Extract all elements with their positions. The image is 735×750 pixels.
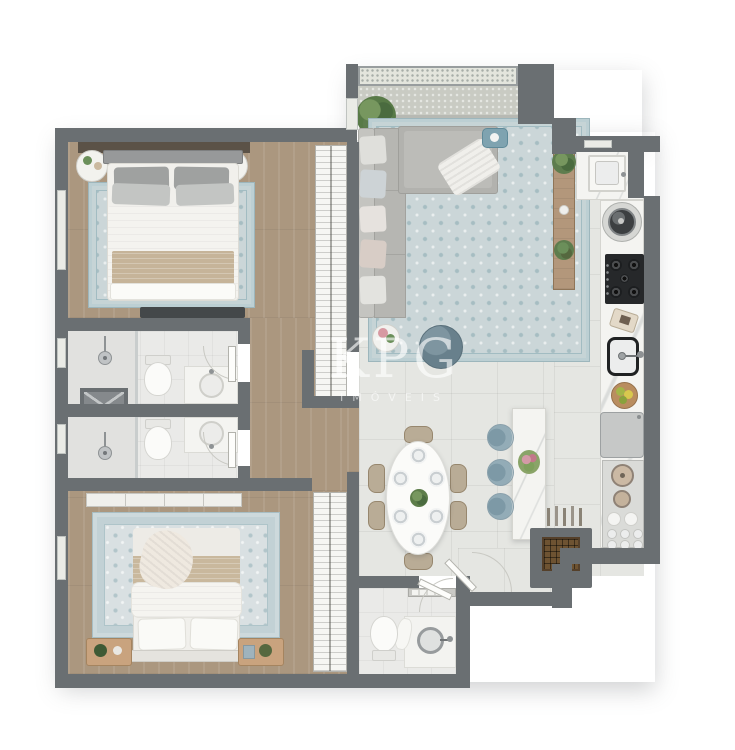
laundry-faucet xyxy=(621,172,626,177)
bottle-5 xyxy=(579,508,582,526)
bedroom2-closet xyxy=(313,492,347,672)
cooktop-knobs xyxy=(606,262,609,296)
balcony-railing xyxy=(358,66,518,86)
bathroom1-shower-glass xyxy=(135,331,138,404)
bed2-duvet xyxy=(131,582,242,618)
bathroom1-door xyxy=(228,346,236,382)
sofa-pillow-3 xyxy=(359,205,386,232)
kitchen-island xyxy=(512,408,546,540)
powder-toilet-bowl xyxy=(370,616,398,652)
refrigerator-hinge xyxy=(637,415,641,419)
bar-stool-1 xyxy=(487,424,514,451)
nightstand-left-plant xyxy=(83,156,92,165)
shelf-cup-1 xyxy=(607,529,617,539)
wall-bath2-south xyxy=(55,478,312,491)
sofa-pillow-5 xyxy=(360,276,387,305)
bottle-1 xyxy=(547,508,550,526)
bathroom2-shower-head-dot xyxy=(103,451,107,455)
laundry-sink-basin xyxy=(595,161,619,185)
shelf-pot-small xyxy=(613,490,631,508)
wall-south xyxy=(55,674,470,688)
bathroom1-shower-arm xyxy=(104,336,106,352)
bathroom2-toilet-bowl xyxy=(144,426,172,460)
shelf-cup-3 xyxy=(633,529,643,539)
sofa-pillow-2 xyxy=(359,169,386,198)
place-setting-top xyxy=(410,447,427,464)
floor-plan: KPG IMÓVEIS xyxy=(0,0,735,750)
wall-lavabo-north xyxy=(359,576,419,588)
shelf-plate-2 xyxy=(624,512,638,526)
bar-stool-3 xyxy=(487,493,514,520)
wall-kitchen-south xyxy=(560,548,660,564)
tray-cup xyxy=(490,133,499,142)
window-balcony-side xyxy=(346,98,358,130)
burner-1 xyxy=(610,259,622,271)
place-setting-bottom xyxy=(410,531,427,548)
wall-bath-east-a xyxy=(238,318,250,344)
wall-entry-south xyxy=(470,592,572,606)
dining-chair-left-1 xyxy=(368,464,385,493)
fruit-3 xyxy=(619,396,627,404)
bed1-blanket xyxy=(112,251,234,284)
dining-chair-bottom xyxy=(404,553,433,570)
powder-faucet xyxy=(447,636,453,642)
wall-kitchen-east xyxy=(644,196,660,564)
bar-stool-2 xyxy=(487,459,514,486)
bed2-pillow-right xyxy=(189,617,238,651)
washing-machine-dot xyxy=(618,218,624,224)
wall-closet1-stub-h xyxy=(302,396,359,408)
place-setting-left-2 xyxy=(392,508,409,525)
place-setting-left-1 xyxy=(392,470,409,487)
kitchen-faucet xyxy=(637,351,644,358)
hallway-wood-patch xyxy=(347,408,359,472)
wall-bath-divider xyxy=(55,404,250,417)
bottle-4 xyxy=(571,506,574,526)
dining-chair-right-1 xyxy=(450,464,467,493)
bed2-headboard xyxy=(130,650,243,662)
bed1-pillow-d xyxy=(176,183,235,206)
bed1-foot-fold xyxy=(110,283,236,300)
bedroom1-closet xyxy=(315,145,347,398)
sideboard-vase xyxy=(559,205,569,215)
place-setting-right-1 xyxy=(428,470,445,487)
bathroom1-sink xyxy=(199,373,224,398)
wall-bedroom1-south xyxy=(55,318,250,331)
burner-2 xyxy=(628,259,640,271)
wall-bedroom2-east xyxy=(347,472,359,688)
kitchen-sink-drain xyxy=(618,352,626,360)
window-laundry xyxy=(584,140,612,148)
shelf-cup-2 xyxy=(620,529,630,539)
wall-bath-east-c xyxy=(238,466,250,491)
bathroom2-shower-glass xyxy=(135,417,138,478)
bed1-pillow-c xyxy=(112,183,171,206)
window-bedroom1 xyxy=(57,190,66,270)
window-bathroom2 xyxy=(57,424,66,454)
side-table-leaves xyxy=(386,334,395,343)
bed1-headboard xyxy=(103,150,243,164)
sofa-pillow-1 xyxy=(359,135,387,165)
powder-toilet-tank xyxy=(372,650,396,661)
wall-bath-east-b xyxy=(238,382,250,430)
bedroom2-nightstand-left xyxy=(86,638,132,666)
nightstand2-left-plant xyxy=(94,644,107,657)
burner-3 xyxy=(610,286,622,298)
wall-kitchen-east-upper xyxy=(628,152,644,198)
shelf-pot-large-knob xyxy=(620,473,625,478)
bed2-pillow-left xyxy=(137,617,186,651)
nightstand2-right-plant xyxy=(259,644,272,657)
window-bathroom1 xyxy=(57,338,66,368)
wall-lavabo-east xyxy=(456,576,470,688)
bottle-3 xyxy=(563,508,566,526)
nightstand-left-lamp xyxy=(94,162,102,170)
bathroom1-toilet-bowl xyxy=(144,362,172,396)
dining-centerpiece xyxy=(410,489,428,507)
sofa-pillow-4 xyxy=(359,239,387,269)
bathroom2-door xyxy=(228,432,236,468)
bedroom2-wardrobe xyxy=(86,493,242,507)
sideboard-plant-2 xyxy=(554,240,574,260)
wall-north xyxy=(55,128,357,142)
dining-chair-left-2 xyxy=(368,501,385,530)
pouf xyxy=(419,325,463,369)
dining-chair-right-2 xyxy=(450,501,467,530)
window-bedroom2 xyxy=(57,536,66,580)
island-flowers xyxy=(518,450,540,474)
shelf-plate-1 xyxy=(607,512,621,526)
place-setting-right-2 xyxy=(428,508,445,525)
wall-balcony-left xyxy=(346,64,358,98)
bottle-2 xyxy=(555,506,558,526)
bedroom1-tv-console xyxy=(140,307,245,318)
wall-hall-east xyxy=(347,142,359,352)
bathroom1-shower-head-dot xyxy=(103,356,107,360)
burner-4 xyxy=(628,286,640,298)
wall-balcony-right-block xyxy=(518,64,554,124)
nightstand2-right-book xyxy=(243,645,255,659)
burner-center xyxy=(620,274,629,283)
nightstand2-left-vase xyxy=(113,646,122,655)
